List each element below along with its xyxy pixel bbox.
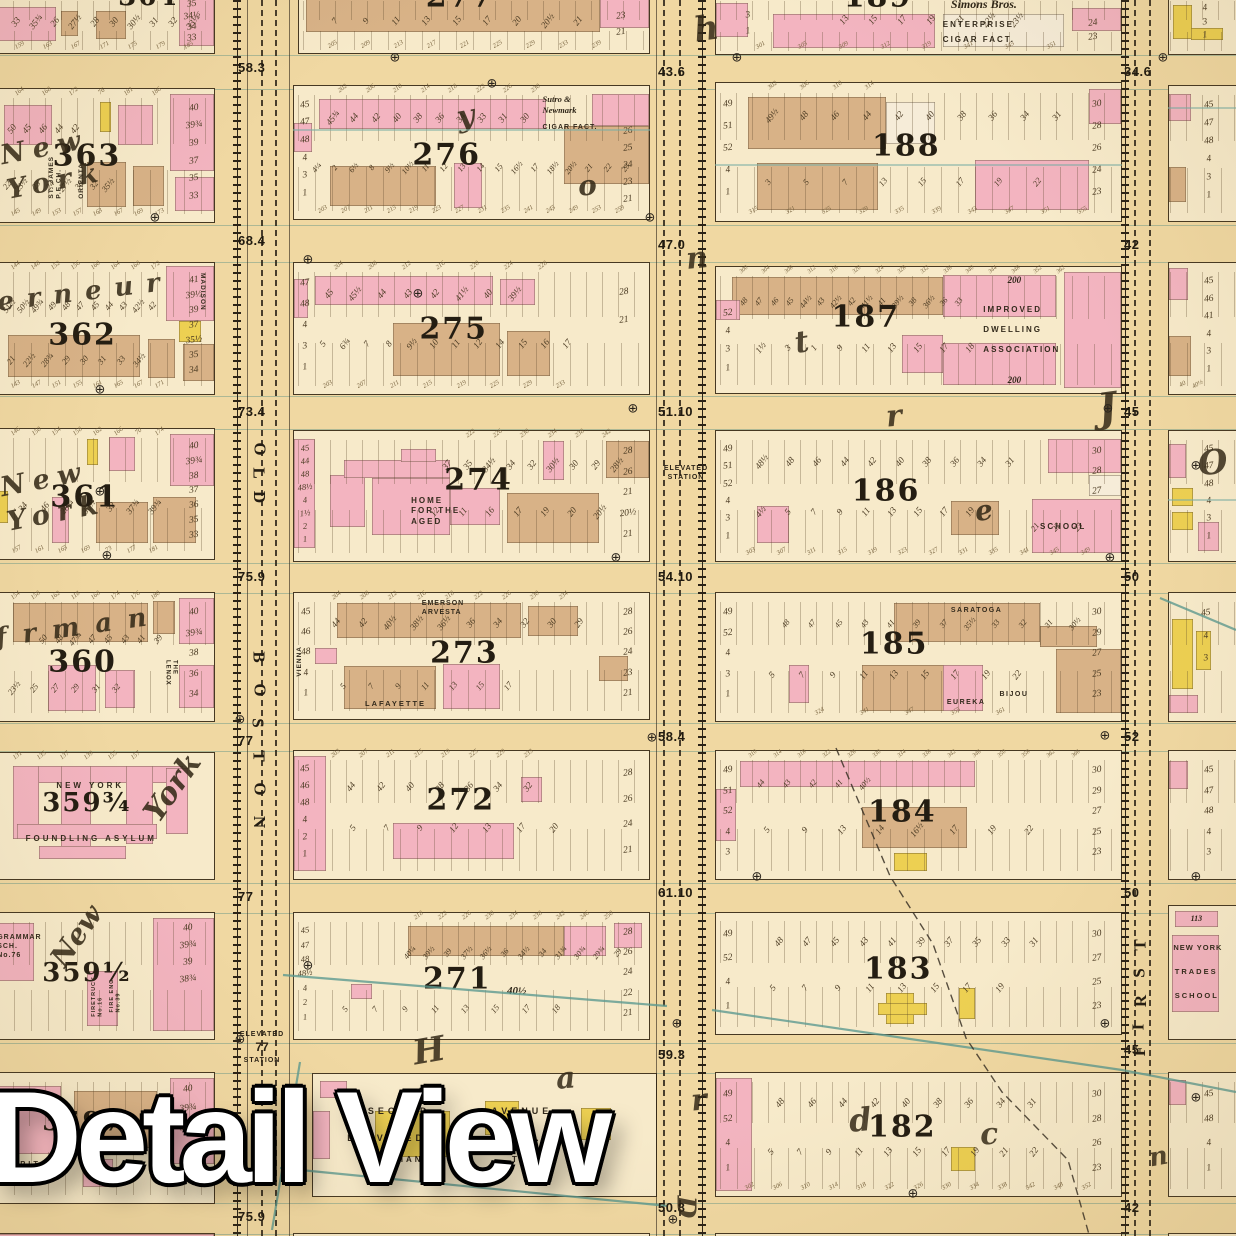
lot-number: 148 (30, 260, 42, 271)
lot-number: 38 (921, 456, 934, 469)
lot-number: 155 (72, 380, 84, 391)
map-label: IMPROVED (983, 305, 1042, 315)
map-label: SCHOOL (1040, 522, 1086, 532)
street-measurement: 50 (1124, 885, 1139, 900)
map-label: ASSOCIATION (983, 345, 1060, 355)
lot-number: 44 (330, 617, 343, 630)
lot-number: 25 (1091, 670, 1102, 681)
lot-number: 348 (1010, 264, 1021, 274)
map-label: CIGAR FACT. (943, 35, 1015, 45)
street-measurement: 47.0 (658, 237, 685, 252)
block-360: 154158162118168174176180504847¾474543413… (0, 592, 215, 722)
map-label: SARATOGA (951, 606, 1002, 615)
lot-number: 230 (519, 428, 531, 439)
elevated-station-label: ELEVATEDSTATION (654, 464, 718, 483)
lot-number: 221 (459, 40, 471, 51)
lot-number: 214 (420, 83, 432, 94)
building (39, 846, 127, 859)
lot-number: 4 (725, 1139, 731, 1149)
lot-number: 42 (357, 617, 370, 630)
lot-number: 327 (928, 547, 940, 558)
lot-number: 3 (1202, 18, 1208, 28)
street-name-letter-boston: D (249, 491, 269, 505)
lot-number: 176 (130, 590, 142, 601)
lot-number: 30 (78, 354, 90, 366)
lot-number: 38 (908, 297, 919, 308)
lot-number: 37 (938, 618, 949, 629)
lot-number: 158 (30, 590, 42, 601)
map-label: 200 (1008, 375, 1022, 387)
lot-number: 45¾ (325, 109, 342, 127)
lot-number: 30 (1091, 608, 1102, 619)
lot-number: 11 (852, 1146, 864, 1158)
block-number-label: 187 (832, 300, 901, 335)
block-274: 222226230234238242373534½343230½302928½1… (293, 430, 650, 562)
lot-number: 334 (969, 1182, 981, 1193)
lot-number: 345 (1049, 547, 1061, 558)
map-label: THE LENOX (164, 660, 178, 686)
street-measurement: 42 (1124, 1200, 1139, 1215)
map-label: GRAMMAR SCH. No.76 (0, 933, 42, 960)
street-measurement: 45 (1124, 1042, 1139, 1057)
lot-number: 9 (835, 507, 845, 516)
building (1169, 1080, 1186, 1105)
lot-number: 206 (365, 83, 377, 94)
lot-number: 34 (189, 690, 200, 701)
lot-number: 19 (980, 669, 993, 682)
street-measurement: 54.10 (658, 569, 693, 584)
lot-number: 44 (348, 112, 361, 125)
lot-number: 50 (5, 123, 18, 136)
lot-number: 51 (723, 462, 734, 473)
lot-number: 21 (616, 28, 627, 39)
lot-number: 7 (795, 1147, 805, 1156)
block-f4: 4543 (1168, 592, 1236, 722)
street-measurement: 77 (238, 733, 253, 748)
lot-number: 38 (956, 110, 969, 123)
lot-number: 9 (833, 983, 843, 992)
lot-number: 25 (28, 682, 40, 694)
lot-number: 310 (747, 748, 758, 758)
lot-number: 44 (345, 781, 358, 794)
map-label: FIRE ENG. No.39 (109, 976, 122, 1013)
map-label: TRADES (1175, 967, 1218, 977)
street-measurement: 45 (1124, 404, 1139, 419)
lot-number: 40 (1179, 380, 1188, 389)
lot-number: 24 (622, 820, 633, 831)
lot-number: 33 (954, 297, 965, 308)
street-name-letter-first: T (1131, 937, 1151, 950)
lot-number: 318 (857, 1182, 869, 1193)
lot-number: 33 (476, 112, 489, 125)
lot-number: 48 (1203, 807, 1214, 818)
block-number-label: 359¾ (42, 788, 131, 818)
lot-number: 24 (1091, 166, 1102, 177)
building (1169, 268, 1188, 299)
lot-number: 29 (69, 682, 81, 694)
lot-number: 335 (894, 206, 906, 217)
building (878, 1003, 927, 1015)
lot-number: 205 (327, 40, 339, 51)
street-name-letter-boston: T (249, 750, 269, 763)
lot-number: 24 (1087, 19, 1098, 30)
building (183, 344, 214, 381)
lot-number: 22 (622, 988, 633, 999)
street-measurement: 59.3 (658, 1047, 685, 1062)
watermark-text: Detail View (0, 1062, 606, 1212)
block-276: 20220621021421822222623045¾4442403836343… (293, 85, 650, 220)
lot-number: 315 (749, 206, 761, 217)
lot-number: 4 (725, 497, 731, 507)
lot-number: 45 (300, 925, 310, 935)
lot-number: 224 (503, 260, 515, 271)
lot-number: 21 (622, 1008, 633, 1019)
script-letter: r (885, 401, 903, 432)
lot-number: 338 (997, 1182, 1009, 1193)
lot-number: 14 (494, 338, 507, 351)
lot-number: 48 (1203, 1114, 1214, 1125)
lot-number: 314 (864, 80, 876, 91)
block-f5: 45474843 (1168, 750, 1236, 880)
lot-number: 37 (189, 321, 200, 332)
building (1169, 94, 1191, 121)
lot-number: 326 (847, 748, 858, 758)
lot-number: 233 (523, 748, 535, 759)
lot-number: 30 (1091, 929, 1102, 940)
lot-number: 29 (589, 458, 602, 471)
lot-number: 3 (725, 514, 731, 524)
block-272: 2032072112152192252292334442403836343257… (293, 750, 650, 880)
block-361: 14615015415816216670174244628¾30½3237¾39… (0, 428, 215, 560)
map-label: Sutro & Newmark (543, 94, 577, 116)
lot-number: 7 (382, 823, 392, 832)
lot-number: 335 (989, 547, 1001, 558)
lot-number: 13 (447, 680, 459, 692)
lot-number: 219 (409, 204, 421, 215)
lot-number: 167 (134, 380, 146, 391)
lot-number: 19 (993, 982, 1006, 995)
lot-number: 15 (474, 680, 486, 692)
lot-number: 218 (414, 910, 426, 921)
lot-number: 253 (591, 204, 603, 215)
lot-number: 5 (348, 823, 358, 832)
lot-number: 42 (892, 110, 905, 123)
map-label: FOUNDLING ASYLUM (26, 834, 157, 844)
lot-number: 32 (167, 16, 180, 29)
map-label: FIRETRUCK No.16 (91, 976, 104, 1017)
lot-number: 36½ (921, 294, 936, 310)
lot-number: 1 (302, 363, 308, 373)
lot-number: 35 (189, 516, 200, 527)
block-number-label: 275 (419, 311, 488, 346)
lot-number: 167 (70, 41, 82, 52)
lot-number: 17 (949, 669, 962, 682)
building (507, 493, 599, 542)
lot-number: 34 (491, 617, 504, 630)
lot-number: 29¾ (592, 945, 607, 961)
lot-number: 204 (331, 590, 343, 601)
lot-number: 161 (34, 545, 46, 556)
street-measurement: 43.6 (658, 64, 685, 79)
lot-number: 41 (833, 779, 844, 790)
lot-number: 28 (1091, 1114, 1102, 1125)
lot-number: 234 (547, 428, 559, 439)
lot-number: 1½ (754, 340, 768, 354)
lot-number: 44 (756, 779, 767, 790)
benchmark-icon: ⊕ (628, 403, 639, 416)
lot-number: 226 (501, 590, 513, 601)
lot-number: 26 (622, 467, 633, 478)
lot-number: 49½ (764, 107, 781, 125)
lot-number: 49 (723, 445, 734, 456)
lot-number: 42 (866, 456, 879, 469)
block-f6: 113NEW YORKTRADESSCHOOL (1168, 905, 1236, 1040)
lot-number: 145 (10, 207, 22, 218)
lot-number: 179 (155, 41, 167, 52)
lot-number: 1 (725, 1002, 731, 1012)
lot-number: 19 (993, 176, 1005, 188)
lot-number: 34½ (183, 11, 201, 23)
lot-number: 137 (59, 750, 71, 761)
street-measurement: 61.10 (658, 885, 693, 900)
block-183: 4847454341393735333157911131517194952413… (715, 912, 1122, 1035)
street-measurement: 58.3 (238, 60, 265, 75)
lot-number: 45 (1203, 766, 1214, 777)
building (344, 460, 451, 478)
lot-number: 6¾ (338, 337, 352, 351)
lot-number: 1½ (299, 508, 311, 518)
lot-number: 40 (894, 456, 907, 469)
lot-number: 151 (51, 380, 63, 391)
script-letter: r (690, 1085, 708, 1116)
lot-number: 322 (885, 1182, 897, 1193)
lot-number: 222 (437, 910, 449, 921)
lot-number: 3 (745, 11, 751, 21)
lot-number: 242 (601, 428, 613, 439)
lot-number: 44 (861, 110, 874, 123)
lot-number: 225 (492, 40, 504, 51)
benchmark-icon: ⊕ (611, 552, 622, 565)
lot-number: 48 (299, 300, 310, 311)
street-name-letter-first: R (1131, 993, 1151, 1007)
lot-number: 40 (900, 1096, 913, 1109)
lot-number: 181 (123, 86, 135, 97)
map-label: y (454, 95, 478, 136)
lot-number: 45 (300, 443, 310, 453)
lot-number: 165 (113, 380, 125, 391)
lot-number: 212 (402, 260, 414, 271)
benchmark-icon: ⊕ (303, 960, 314, 973)
lot-number: 27 (1091, 954, 1102, 965)
benchmark-icon: ⊕ (487, 78, 498, 91)
street-name-letter-first: S (1130, 966, 1150, 977)
lot-number: 9 (828, 670, 838, 679)
lot-number: 314 (772, 748, 783, 758)
map-canvas: Detail View 3335¾2627½283030½313233½1591… (0, 0, 1236, 1236)
lot-number: 33 (189, 531, 200, 542)
lot-number: 18½ (546, 160, 561, 176)
lot-number: 4 (1206, 497, 1212, 507)
lot-number: 15 (912, 341, 925, 354)
lot-number: 30 (1091, 446, 1102, 457)
lot-number: 312 (880, 41, 892, 52)
map-label: ENTERPRISE (943, 20, 1014, 30)
benchmark-icon: ⊕ (908, 1188, 919, 1201)
lot-number: 169 (80, 545, 92, 556)
lot-number: 234 (508, 910, 520, 921)
street-measurement: 50 (1124, 569, 1139, 584)
lot-number: 355 (1077, 206, 1089, 217)
lot-number: 49 (723, 929, 734, 940)
lot-number: 361 (995, 707, 1007, 718)
benchmark-icon: ⊕ (95, 384, 106, 397)
lot-number: 15 (911, 1145, 924, 1158)
lot-number: 234 (558, 590, 570, 601)
lot-number: 42 (429, 288, 442, 301)
lot-number: 31 (1028, 936, 1041, 949)
lot-number: 3 (1206, 514, 1212, 524)
building (330, 475, 366, 527)
lot-number: 47 (1203, 118, 1214, 129)
lot-number: 17 (529, 163, 540, 174)
lot-number: 46 (301, 628, 312, 639)
lot-number: 324 (874, 264, 885, 274)
lot-number: 28 (1091, 122, 1102, 133)
lot-number: 19 (986, 824, 999, 837)
lot-number: 39 (152, 633, 164, 645)
lot-number: 35½ (963, 616, 978, 632)
lot-number: 11 (857, 669, 869, 681)
lot-number: 19 (969, 1145, 982, 1158)
block-359¾: 131135137139155157359¾NEW YORKFOUNDLING … (0, 752, 215, 880)
lot-number: 306 (772, 1182, 784, 1193)
lot-number: 220 (469, 260, 481, 271)
lot-number: 152 (50, 260, 62, 271)
lot-number: 3 (763, 178, 772, 187)
lot-number: 150 (31, 426, 43, 437)
lot-number: 21 (5, 354, 17, 366)
lot-number: 36 (963, 1096, 976, 1109)
benchmark-icon: ⊕ (1158, 52, 1169, 65)
building (1172, 488, 1194, 506)
lot-number: 45 (829, 936, 842, 949)
lot-number: 15 (493, 163, 504, 174)
lot-number: 47 (754, 297, 765, 308)
benchmark-icon: ⊕ (235, 1034, 246, 1047)
lot-number: 186 (151, 86, 163, 97)
block-number-label: 272 (427, 782, 496, 817)
block-number-label: 185 (860, 627, 929, 662)
building (351, 984, 372, 999)
lot-number: 25 (1091, 828, 1102, 839)
block-277: 79111315172020½2120520921321722122522923… (298, 0, 650, 54)
street-name-letter-boston: B (249, 651, 269, 664)
lot-number: 22 (1031, 176, 1043, 188)
map-label: HOME FOR THE AGED (411, 496, 460, 527)
lot-number: 21 (622, 530, 633, 541)
lot-number: 21 (622, 688, 633, 699)
lot-number: 202 (337, 83, 349, 94)
street-measurement: 68.4 (238, 233, 265, 248)
lot-number: 4 (1202, 4, 1208, 14)
lot-number: 29 (60, 354, 72, 366)
lot-number: 314 (829, 1182, 841, 1193)
lot-number: 20½ (619, 508, 637, 520)
block-f7: 454841 (1168, 1072, 1236, 1197)
lot-number: 40 (482, 288, 495, 301)
block-f1: 454748431 (1168, 85, 1236, 222)
lot-number: 3 (725, 345, 731, 355)
lot-number: 48 (798, 110, 811, 123)
lot-number: 45 (299, 100, 310, 111)
lot-number: 46 (811, 456, 824, 469)
building (592, 94, 649, 126)
lot-number: 11 (860, 342, 872, 354)
lot-number: 225 (468, 748, 480, 759)
lot-number: 241 (523, 204, 535, 215)
lot-number: 52 (723, 309, 734, 320)
lot-number: 229 (522, 380, 534, 391)
building (894, 853, 926, 871)
building (975, 160, 1088, 210)
lot-number: 30½ (1068, 616, 1083, 632)
lot-number: 171 (99, 41, 111, 52)
lot-number: 70 (135, 427, 144, 436)
lot-number: 30¾ (573, 945, 588, 961)
lot-number: 4 (303, 669, 309, 679)
lot-number: 334 (897, 748, 908, 758)
lot-number: 38 (412, 112, 425, 125)
lot-number: 164 (110, 260, 122, 271)
lot-number: 332 (920, 264, 931, 274)
lot-number: 4 (725, 978, 731, 988)
lot-number: 46 (806, 1096, 819, 1109)
lot-number: 208 (359, 590, 371, 601)
lot-number: 34 (995, 1096, 1008, 1109)
lot-number: 4 (1203, 631, 1209, 641)
lot-number: 1 (303, 689, 309, 699)
block-number-label: 189 (844, 0, 913, 15)
lot-number: 22 (1023, 824, 1036, 837)
lot-number: 1 (1206, 364, 1212, 374)
lot-number: 312 (806, 264, 817, 274)
lot-number: 1 (725, 364, 731, 374)
lot-number: 25 (622, 143, 633, 154)
lot-number: 21 (1029, 521, 1041, 533)
lot-number: 139 (83, 750, 95, 761)
lot-number: 21 (998, 1145, 1011, 1158)
lot-number: 25 (1091, 978, 1102, 989)
lot-number: 33 (115, 354, 127, 366)
lot-number: 131 (12, 750, 24, 761)
lot-number: 1 (302, 1012, 307, 1021)
block-f2: 4040½454641431 (1168, 262, 1236, 395)
block-271: 21822222623023423824224625040¼39½3937½36… (293, 912, 650, 1040)
lot-number: 203 (317, 204, 329, 215)
lot-number: 5 (783, 507, 793, 516)
lot-number: 230 (485, 910, 497, 921)
lot-number: 31 (1050, 110, 1063, 123)
lot-number: 212 (388, 590, 400, 601)
lot-number: 15 (918, 669, 931, 682)
lot-number: 32 (1017, 618, 1028, 629)
lot-number: 48 (738, 297, 749, 308)
lot-number: 34 (189, 365, 200, 376)
benchmark-icon: ⊕ (668, 1214, 679, 1227)
lot-number: 174 (154, 426, 166, 437)
lot-number: 340 (965, 264, 976, 274)
block-number-label: 360 (48, 645, 117, 680)
